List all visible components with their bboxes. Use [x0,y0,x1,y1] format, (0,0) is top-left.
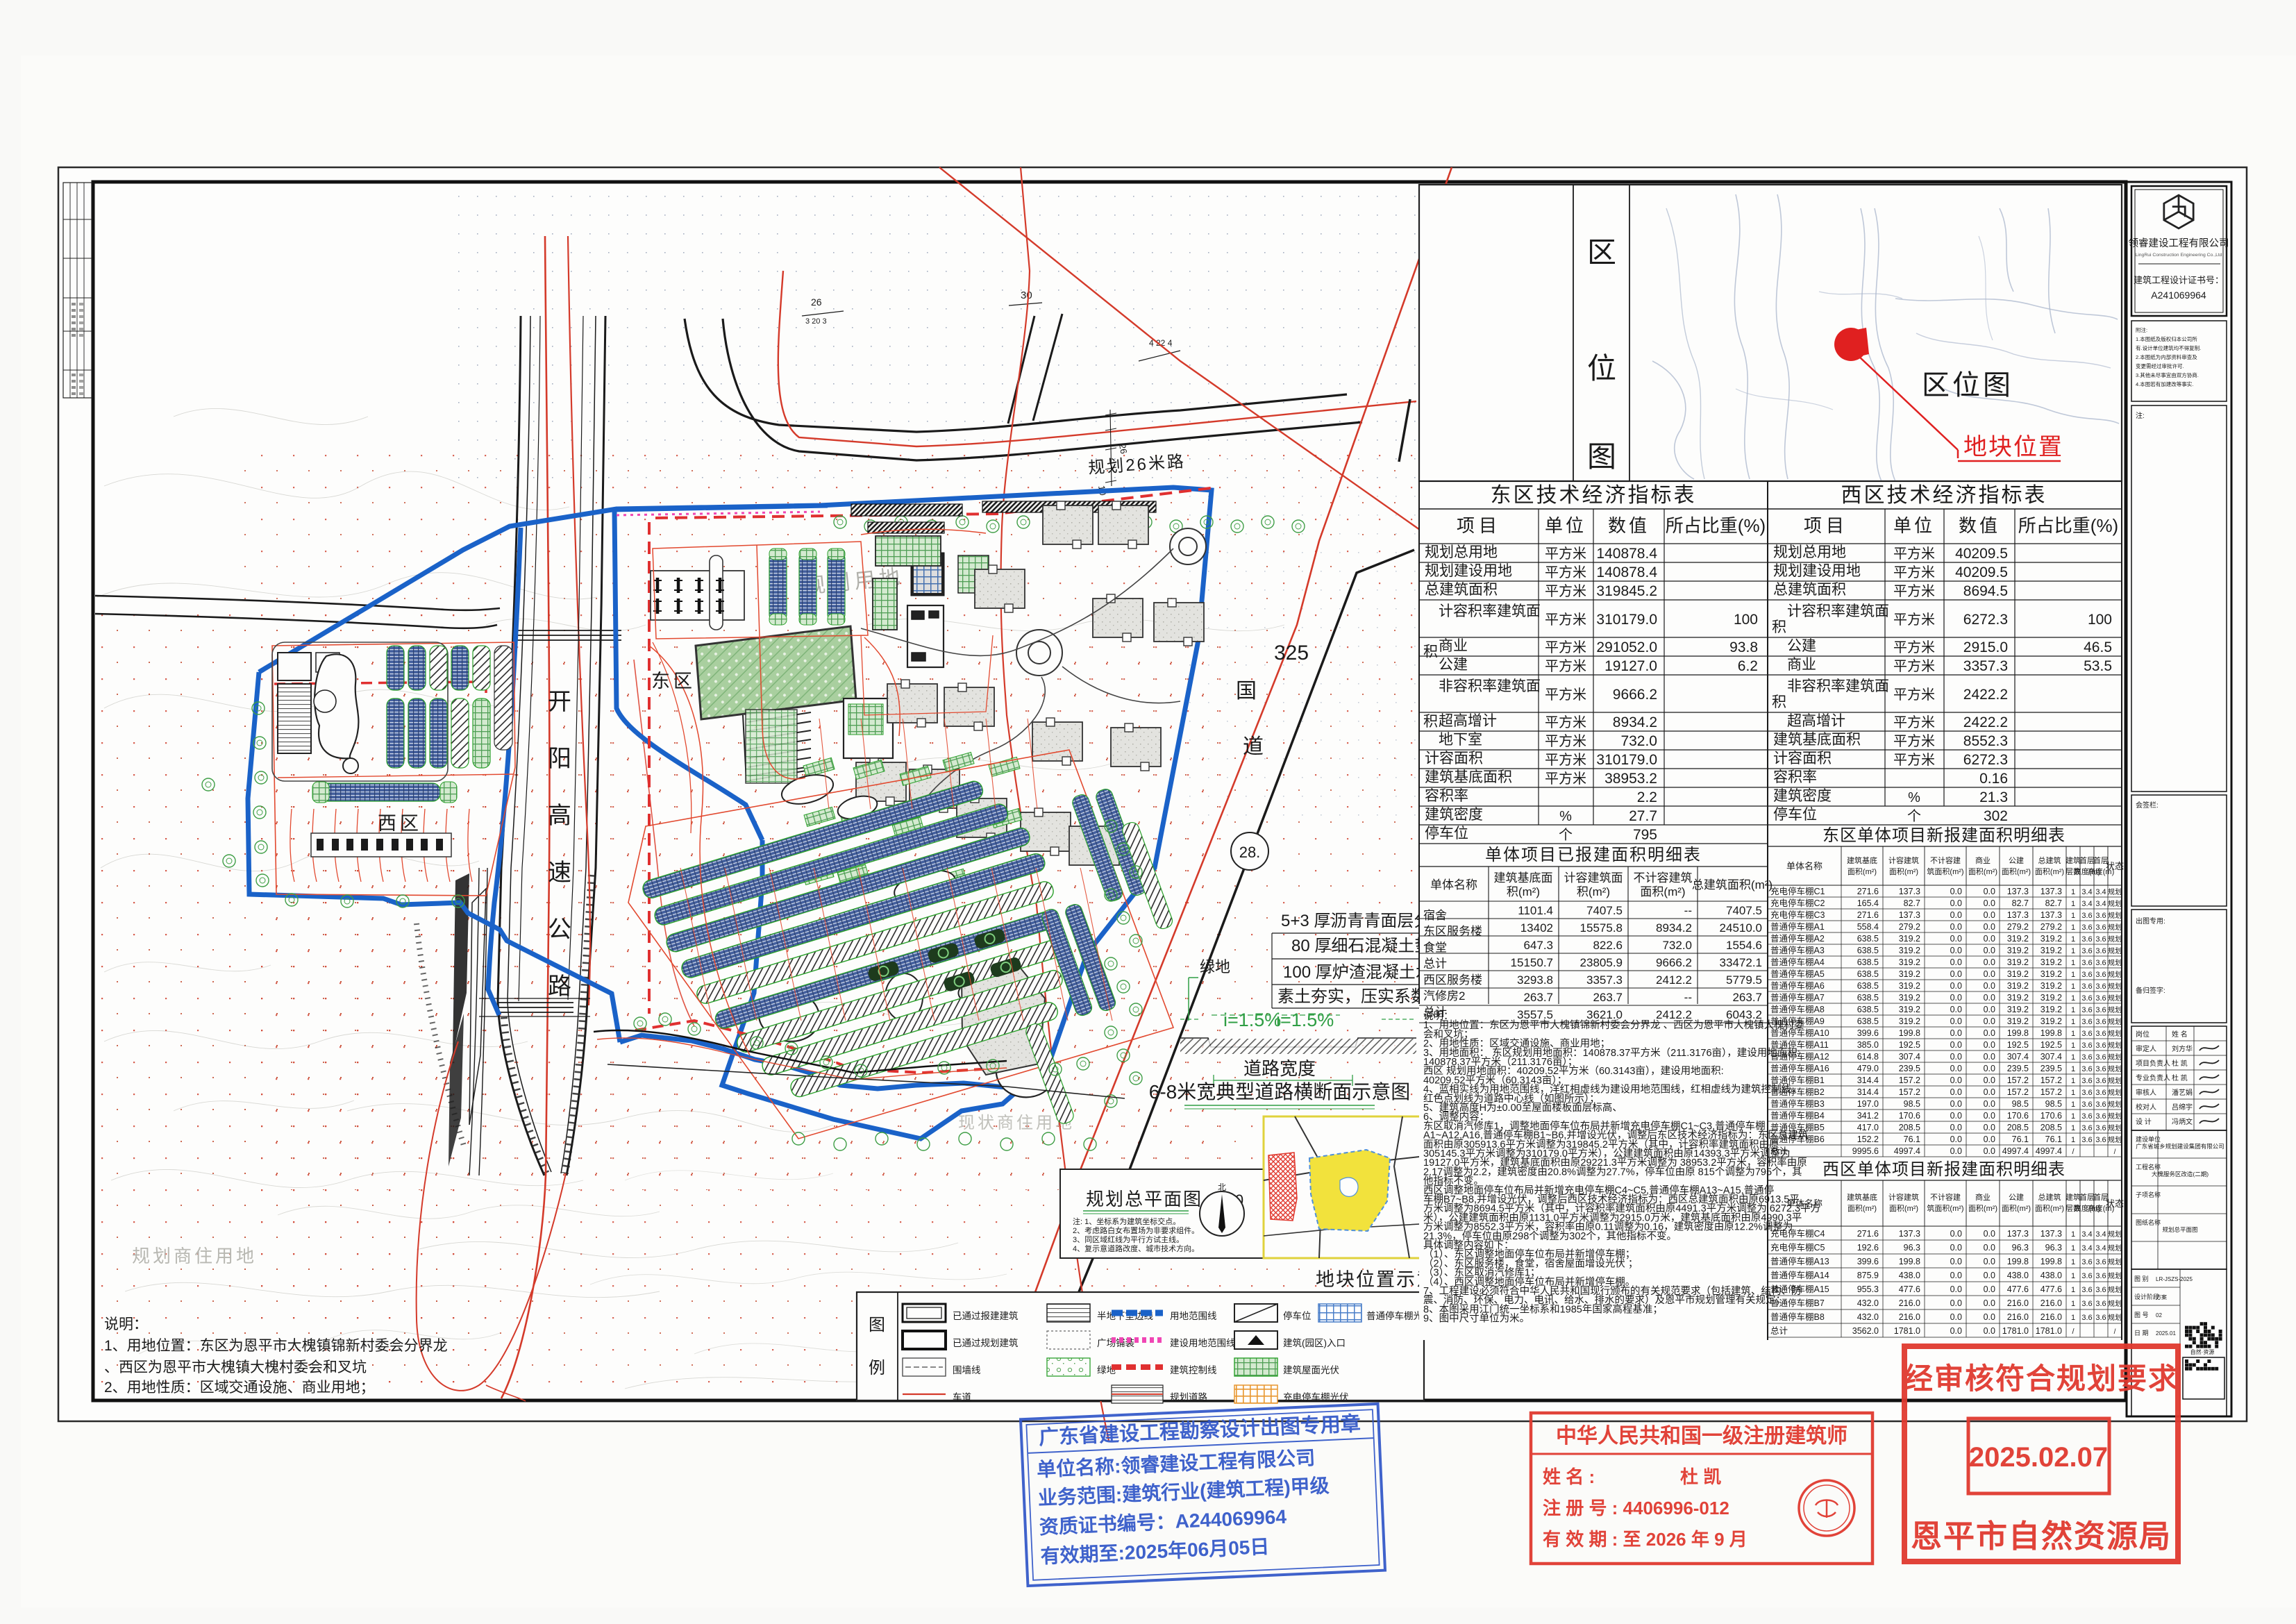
svg-text:0.0: 0.0 [1984,1284,1995,1294]
svg-text:3.6: 3.6 [2081,1006,2092,1014]
svg-text:3、同区域红线为平行方试主线。: 3、同区域红线为平行方试主线。 [1073,1234,1184,1244]
svg-text:经审核符合规划要求: 经审核符合规划要求 [1904,1362,2179,1395]
svg-text:位: 位 [1587,352,1616,385]
svg-text:96.3: 96.3 [2045,1243,2062,1253]
svg-text:33472.1: 33472.1 [1720,956,1762,969]
svg-text:100: 100 [2088,612,2112,628]
svg-text:208.5: 208.5 [1899,1123,1920,1132]
svg-text:恩平市自然资源局: 恩平市自然资源局 [1911,1518,2172,1554]
svg-text:9995.6: 9995.6 [1852,1146,1879,1156]
svg-text:建设单位: 建设单位 [2136,1135,2161,1143]
svg-text:已通过报建建筑: 已通过报建建筑 [953,1311,1019,1321]
svg-text:普通停车棚A14: 普通停车棚A14 [1770,1270,1829,1280]
svg-text:平方米: 平方米 [1893,639,1935,655]
svg-text:平方米: 平方米 [1545,612,1586,628]
svg-text:98.5: 98.5 [2045,1099,2062,1109]
svg-text:建筑基底面积: 建筑基底面积 [1773,732,1861,748]
svg-text:有.设计单位建筑均不得复制.: 有.设计单位建筑均不得复制. [2136,344,2201,351]
svg-text:积: 积 [1423,714,1438,730]
svg-text:面积(m²): 面积(m²) [2002,1204,2031,1213]
svg-text:0.0: 0.0 [1984,946,1995,955]
svg-text:3.6: 3.6 [2081,982,2092,991]
svg-text:3.6: 3.6 [2095,982,2106,991]
svg-text:1: 1 [2071,1089,2075,1097]
svg-text:2.本图纸为内部资料审查及: 2.本图纸为内部资料审查及 [2136,353,2197,360]
svg-text:3.4: 3.4 [2095,1230,2106,1239]
svg-text:例: 例 [869,1359,885,1378]
svg-text:项目负责人: 项目负责人 [2136,1059,2170,1068]
svg-text:0.0: 0.0 [1950,1135,1962,1144]
svg-text:638.5: 638.5 [1857,1016,1879,1026]
svg-text:638.5: 638.5 [1857,993,1879,1003]
svg-text:0.0: 0.0 [1950,1298,1962,1308]
svg-text:3 20 3: 3 20 3 [805,317,827,326]
svg-text:计容积率建筑面: 计容积率建筑面 [1787,603,1889,619]
svg-text:319.2: 319.2 [2007,946,2029,955]
svg-text:1: 1 [2071,1300,2075,1308]
svg-text:杜 凯: 杜 凯 [1680,1466,1721,1487]
svg-text:0.0: 0.0 [1984,1040,1995,1050]
svg-text:15575.8: 15575.8 [1580,921,1623,935]
svg-text:规划: 规划 [2108,1076,2122,1085]
svg-text:0.0: 0.0 [1950,1111,1962,1121]
svg-text:充电停车棚C5: 充电停车棚C5 [1770,1242,1825,1253]
svg-text:3.6: 3.6 [2081,1041,2092,1050]
svg-text:规划: 规划 [2108,970,2122,979]
svg-text:规划建设用地: 规划建设用地 [1425,563,1512,579]
svg-text:98.5: 98.5 [2012,1099,2029,1109]
svg-text:图: 图 [869,1316,885,1334]
svg-text:0.0: 0.0 [1984,934,1995,944]
svg-text:3.4: 3.4 [2081,1230,2092,1239]
svg-text:40209.5: 40209.5 [1955,546,2008,562]
svg-text:宿舍: 宿舍 [1423,909,1447,922]
svg-text:3.6: 3.6 [2081,1100,2092,1109]
svg-text:1: 1 [2071,1112,2075,1121]
svg-text:平方米: 平方米 [1893,714,1935,730]
svg-text:3.4: 3.4 [2095,888,2106,896]
svg-text:638.5: 638.5 [1857,946,1879,955]
svg-text:319.2: 319.2 [2041,1005,2062,1014]
svg-text:状态: 状态 [2106,861,2124,871]
svg-text:0.0: 0.0 [1984,1146,1995,1156]
svg-text:图纸名称: 图纸名称 [2136,1219,2161,1226]
svg-text:1: 1 [2071,1065,2075,1073]
svg-text:规划总用地: 规划总用地 [1773,544,1846,560]
svg-text:项目: 项目 [1804,515,1848,536]
svg-text:平方米: 平方米 [1893,612,1935,628]
svg-text:438.0: 438.0 [2041,1271,2062,1280]
svg-text:3.6: 3.6 [2081,923,2092,932]
svg-text:附注:: 附注: [2136,326,2147,333]
svg-text:0.0: 0.0 [1950,1099,1962,1109]
svg-text:23805.9: 23805.9 [1580,956,1623,969]
svg-text:239.5: 239.5 [2007,1064,2029,1073]
svg-text:263.7: 263.7 [1593,991,1623,1004]
svg-text:310179.0: 310179.0 [1596,752,1657,768]
svg-text:首层: 首层 [2079,1192,2095,1202]
svg-text:自然·资源: 自然·资源 [2190,1348,2215,1355]
svg-text:变更需经过审批许可.: 变更需经过审批许可. [2136,362,2184,369]
svg-text:汽修房2: 汽修房2 [1423,989,1465,1003]
svg-text:319.2: 319.2 [1899,946,1920,955]
svg-text:137.3: 137.3 [2041,1229,2062,1239]
svg-text:建筑: 建筑 [2065,855,2081,865]
svg-text:数值: 数值 [1959,515,2000,536]
svg-text:规划: 规划 [2108,911,2122,920]
svg-text:地下室: 地下室 [1439,732,1482,748]
svg-text:477.6: 477.6 [2041,1284,2062,1294]
svg-text:道: 道 [1243,735,1264,758]
svg-text:3357.3: 3357.3 [1963,658,2008,674]
svg-text:积: 积 [1772,694,1786,710]
svg-text:商业: 商业 [1975,855,1991,865]
svg-text:165.4: 165.4 [1857,898,1879,908]
svg-text:建筑(园区)入口: 建筑(园区)入口 [1283,1338,1346,1348]
svg-text:5779.5: 5779.5 [1726,973,1762,987]
svg-text:吕绵宇: 吕绵宇 [2172,1103,2193,1112]
svg-text:3.6: 3.6 [2095,1030,2106,1038]
svg-text:137.3: 137.3 [2041,910,2062,920]
svg-text:0.0: 0.0 [1950,1271,1962,1280]
svg-text:82.7: 82.7 [2045,898,2062,908]
svg-text:3.6: 3.6 [2095,1272,2106,1280]
svg-text:3.其他未尽事宜由双方协商.: 3.其他未尽事宜由双方协商. [2136,371,2199,378]
svg-text:3.6: 3.6 [2095,971,2106,979]
svg-text:8694.5: 8694.5 [1963,583,2008,599]
svg-text:3.6: 3.6 [2081,1124,2092,1132]
svg-text:157.2: 157.2 [2041,1087,2062,1097]
svg-text:平方米: 平方米 [1893,583,1935,599]
svg-text:规划: 规划 [2108,1100,2122,1109]
svg-text:规划: 规划 [2108,887,2122,896]
svg-text:平方米: 平方米 [1893,752,1935,768]
svg-text:137.3: 137.3 [1899,887,1920,896]
svg-text:数值: 数值 [1608,515,1650,536]
svg-text:注 册 号 : 4406996-012: 注 册 号 : 4406996-012 [1543,1498,1729,1518]
svg-text:0.0: 0.0 [1950,1312,1962,1322]
svg-text:157.2: 157.2 [1899,1087,1920,1097]
svg-text:超高增计: 超高增计 [1439,713,1497,729]
svg-text:8934.2: 8934.2 [1613,714,1657,730]
svg-text:638.5: 638.5 [1857,1005,1879,1014]
svg-text:638.5: 638.5 [1857,934,1879,944]
svg-text:公建: 公建 [2009,855,2024,865]
svg-text:137.3: 137.3 [2007,887,2029,896]
svg-text:围墙线: 围墙线 [953,1365,981,1375]
svg-text:普通停车棚A4: 普通停车棚A4 [1770,957,1825,967]
svg-text:平方米: 平方米 [1893,658,1935,674]
svg-text:3.6: 3.6 [2081,971,2092,979]
svg-text:规划商住用地: 规划商住用地 [132,1246,257,1266]
svg-text:规划: 规划 [2108,1017,2122,1026]
svg-text:平方米: 平方米 [1545,639,1586,655]
svg-text:3.6: 3.6 [2095,935,2106,944]
svg-text:建筑基底面积: 建筑基底面积 [1425,769,1512,785]
svg-text:3.6: 3.6 [2081,1272,2092,1280]
svg-text:4、复示意道路改度、城市技术方向。: 4、复示意道路改度、城市技术方向。 [1073,1244,1199,1253]
svg-text:955.3: 955.3 [1857,1284,1879,1294]
svg-text:0.0: 0.0 [1984,993,1995,1003]
svg-text:0.0: 0.0 [1950,1005,1962,1014]
svg-text:规划: 规划 [2108,935,2122,944]
svg-text:1: 1 [2071,1272,2075,1280]
svg-text:0.0: 0.0 [1950,981,1962,991]
svg-text:普通停车棚A6: 普通停车棚A6 [1770,980,1825,991]
svg-text:271.6: 271.6 [1857,887,1879,896]
svg-text:1: 1 [2071,1041,2075,1050]
svg-text:充电停车棚C2: 充电停车棚C2 [1770,898,1825,908]
svg-text:杜 凯: 杜 凯 [2172,1059,2188,1068]
svg-text:208.5: 208.5 [2007,1123,2029,1132]
svg-text:3.6: 3.6 [2095,994,2106,1003]
svg-text:面积(m²): 面积(m²) [1968,867,1997,876]
svg-text:0.0: 0.0 [1984,957,1995,967]
svg-text:项目: 项目 [1457,515,1501,536]
svg-text:93.8: 93.8 [1729,639,1758,655]
svg-text:普通停车棚A3: 普通停车棚A3 [1770,945,1825,955]
svg-text:0.0: 0.0 [1984,1123,1995,1132]
svg-text:平方米: 平方米 [1545,687,1586,703]
svg-text:137.3: 137.3 [2007,910,2029,920]
svg-text:公建: 公建 [2009,1192,2024,1202]
svg-text:432.0: 432.0 [1857,1298,1879,1308]
svg-text:157.2: 157.2 [2007,1075,2029,1085]
svg-text:26: 26 [811,296,822,308]
svg-text:197.0: 197.0 [1857,1099,1879,1109]
svg-text:3.6: 3.6 [2095,1065,2106,1073]
svg-text:0.0: 0.0 [1984,1135,1995,1144]
svg-text:0.0: 0.0 [1950,1123,1962,1132]
svg-text:不计容建筑: 不计容建筑 [1634,871,1693,885]
svg-text:614.8: 614.8 [1857,1052,1879,1062]
svg-text:平方米: 平方米 [1545,733,1586,749]
svg-text:216.0: 216.0 [1899,1298,1920,1308]
svg-text:310179.0: 310179.0 [1596,612,1657,628]
svg-text:0.0: 0.0 [1984,1075,1995,1085]
svg-text:审核人: 审核人 [2136,1088,2156,1097]
svg-text:28.: 28. [1239,844,1261,861]
svg-text:271.6: 271.6 [1857,910,1879,920]
svg-text:319.2: 319.2 [2007,1016,2029,1026]
svg-text:0.0: 0.0 [1984,1243,1995,1253]
svg-text:137.3: 137.3 [1899,1229,1920,1239]
svg-text:规划建设用地: 规划建设用地 [1773,563,1861,579]
svg-text:规划总平面图: 规划总平面图 [2162,1226,2197,1233]
svg-text:199.8: 199.8 [1899,1028,1920,1038]
svg-text:3.6: 3.6 [2095,1077,2106,1085]
svg-text:0.0: 0.0 [1984,1016,1995,1026]
svg-text:21.3: 21.3 [1979,789,2008,805]
svg-text:30: 30 [1021,290,1032,301]
svg-text:3.6: 3.6 [2081,1300,2092,1308]
svg-text:319.2: 319.2 [2041,969,2062,979]
svg-text:399.6: 399.6 [1857,1028,1879,1038]
svg-text:注: 1、坐标系为建筑坐标交点。: 注: 1、坐标系为建筑坐标交点。 [1073,1216,1180,1226]
svg-text:路: 路 [548,973,571,1000]
svg-text:3.6: 3.6 [2081,1314,2092,1322]
svg-text:总建筑: 总建筑 [2038,855,2061,865]
svg-text:02: 02 [2156,1312,2162,1319]
svg-text:192.6: 192.6 [1857,1243,1879,1253]
svg-text:3.6: 3.6 [2095,1006,2106,1014]
svg-text:规划: 规划 [2108,1041,2122,1050]
svg-text:6.2: 6.2 [1738,658,1758,674]
svg-text:0.0: 0.0 [1950,934,1962,944]
svg-text:积: 积 [1772,619,1786,635]
svg-text:车道: 车道 [953,1391,971,1403]
svg-text:438.0: 438.0 [2007,1271,2029,1280]
svg-text:规划: 规划 [2108,1135,2122,1144]
svg-text:建筑基底面: 建筑基底面 [1494,871,1553,885]
svg-text:食堂: 食堂 [1423,941,1447,954]
svg-text:计容面积: 计容面积 [1425,751,1483,767]
svg-text:个: 个 [1907,808,1921,824]
svg-text:1: 1 [2071,982,2075,991]
svg-text:高: 高 [548,803,571,829]
svg-text:0.0: 0.0 [1950,1229,1962,1239]
svg-text:3.6: 3.6 [2081,947,2092,955]
svg-text:2025.01: 2025.01 [2156,1330,2176,1337]
svg-text:216.0: 216.0 [2041,1312,2062,1322]
svg-text:1: 1 [2071,1077,2075,1085]
svg-text:单体项目已报建面积明细表: 单体项目已报建面积明细表 [1485,846,1702,864]
svg-text:面积(m²): 面积(m²) [2035,867,2064,876]
svg-text:638.5: 638.5 [1857,969,1879,979]
svg-text:3.4: 3.4 [2081,900,2092,908]
svg-text:地块位置: 地块位置 [1963,434,2063,460]
svg-text:76.1: 76.1 [1904,1135,1920,1144]
svg-text:容积率: 容积率 [1773,769,1817,785]
svg-text:0.0: 0.0 [1984,1005,1995,1014]
svg-text:216.0: 216.0 [2007,1312,2029,1322]
svg-text:普通停车棚A16: 普通停车棚A16 [1770,1063,1829,1073]
svg-text:314.4: 314.4 [1857,1075,1879,1085]
svg-text:302: 302 [1984,808,2008,824]
svg-text:建筑密度: 建筑密度 [1425,807,1483,823]
svg-text:规划: 规划 [2108,1271,2122,1280]
svg-text:3.4: 3.4 [2095,1244,2106,1253]
svg-text:0.0: 0.0 [1950,1326,1962,1336]
svg-text:1: 1 [2071,900,2075,908]
svg-text:0.0: 0.0 [1950,1087,1962,1097]
svg-text:0.0: 0.0 [1950,922,1962,932]
svg-text:438.0: 438.0 [1899,1271,1920,1280]
svg-text:1: 1 [2071,994,2075,1003]
svg-text:319.2: 319.2 [2041,981,2062,991]
svg-text:校对人: 校对人 [2136,1103,2156,1112]
svg-text:停车位: 停车位 [1425,826,1468,842]
svg-text:0.0: 0.0 [1950,1075,1962,1085]
svg-text:319.2: 319.2 [1899,969,1920,979]
svg-text:建设用地范围线: 建设用地范围线 [1170,1338,1236,1348]
svg-text:1: 1 [2071,1258,2075,1266]
svg-text:西区单体项目新报建面积明细表: 西区单体项目新报建面积明细表 [1822,1160,2065,1179]
svg-text:规划: 规划 [2108,958,2122,967]
svg-text:非容积率建筑面: 非容积率建筑面 [1787,678,1889,694]
svg-text:设 计: 设 计 [2136,1117,2152,1126]
svg-text:1、用地位置：东区为恩平市大槐镇锦新村委会分界龙 、西区为恩: 1、用地位置：东区为恩平市大槐镇锦新村委会分界龙 、西区为恩平市大槐镇大槐村委 [1423,1019,1804,1031]
svg-text:开: 开 [548,689,571,715]
svg-text:239.5: 239.5 [2041,1064,2062,1073]
svg-text:总计: 总计 [1423,957,1447,971]
svg-text:0.0: 0.0 [1984,1052,1995,1062]
svg-text:规划: 规划 [2108,1299,2122,1308]
svg-text:规划总平面图: 规划总平面图 [1086,1189,1203,1209]
svg-text:总建筑面积(m²): 总建筑面积(m²) [1692,878,1773,891]
svg-text:7407.5: 7407.5 [1586,904,1623,917]
svg-text:3.6: 3.6 [2095,1018,2106,1026]
svg-text:2915.0: 2915.0 [1963,639,2008,655]
svg-text:8552.3: 8552.3 [1963,733,2008,749]
svg-text:图: 图 [1587,440,1616,473]
svg-text:3.6: 3.6 [2081,935,2092,944]
svg-text:0.0: 0.0 [1950,1284,1962,1294]
svg-text:已通过规划建筑: 已通过规划建筑 [953,1338,1019,1348]
svg-text:平方米: 平方米 [1545,658,1586,674]
svg-text:170.6: 170.6 [2041,1111,2062,1121]
svg-text:普通停车棚A2: 普通停车棚A2 [1770,933,1825,944]
svg-text:i=1.5%: i=1.5% [1276,1010,1334,1030]
svg-text:2.2: 2.2 [1637,789,1657,805]
svg-text:0.0: 0.0 [1950,1243,1962,1253]
svg-text:732.0: 732.0 [1620,733,1657,749]
svg-text:普通停车棚A5: 普通停车棚A5 [1770,969,1825,979]
svg-text:0.0: 0.0 [1950,1064,1962,1073]
svg-text:0.0: 0.0 [1984,1229,1995,1239]
svg-text:3.6: 3.6 [2081,1065,2092,1073]
svg-text:0.0: 0.0 [1950,1052,1962,1062]
svg-text:1101.4: 1101.4 [1518,904,1553,917]
svg-text:审定人: 审定人 [2136,1044,2156,1053]
svg-text:0.0: 0.0 [1984,1099,1995,1109]
svg-text:1: 1 [2071,1006,2075,1014]
svg-text:3.4: 3.4 [2081,888,2092,896]
svg-text:137.3: 137.3 [2041,887,2062,896]
svg-text:0.0: 0.0 [1984,1087,1995,1097]
svg-text:3.6: 3.6 [2095,912,2106,920]
svg-text:199.8: 199.8 [1899,1257,1920,1266]
svg-text:3.6: 3.6 [2095,1041,2106,1050]
svg-text:263.7: 263.7 [1523,991,1553,1004]
svg-text:规划: 规划 [2108,899,2122,908]
svg-text:3357.3: 3357.3 [1586,973,1623,987]
svg-text:192.5: 192.5 [2041,1040,2062,1050]
svg-text:0.0: 0.0 [1984,969,1995,979]
svg-text:1: 1 [2071,1230,2075,1239]
svg-text:大槐服务区改造(二期): 大槐服务区改造(二期) [2152,1171,2209,1178]
svg-text:279.2: 279.2 [2007,922,2029,932]
svg-text:3.6: 3.6 [2081,1053,2092,1062]
svg-text:备归签字:: 备归签字: [2136,986,2165,995]
svg-text:479.0: 479.0 [1857,1064,1879,1073]
svg-text:3.6: 3.6 [2095,1100,2106,1109]
svg-text:319.2: 319.2 [2007,993,2029,1003]
svg-text:3293.8: 3293.8 [1517,973,1553,987]
svg-text:3.6: 3.6 [2095,923,2106,932]
svg-text:263.7: 263.7 [1732,991,1762,1004]
svg-text:3.6: 3.6 [2081,1136,2092,1144]
svg-text:建筑基底: 建筑基底 [1847,1192,1877,1202]
svg-text:2422.2: 2422.2 [1963,714,2008,730]
svg-text:0.0: 0.0 [1984,1298,1995,1308]
svg-text:1: 1 [2071,923,2075,932]
svg-text:1: 1 [2071,1286,2075,1294]
svg-text:0.0: 0.0 [1950,887,1962,896]
svg-text:0.0: 0.0 [1950,957,1962,967]
svg-text:筑面积(m²): 筑面积(m²) [1927,867,1963,876]
svg-text:筑面积(m²): 筑面积(m²) [1927,1203,1963,1213]
